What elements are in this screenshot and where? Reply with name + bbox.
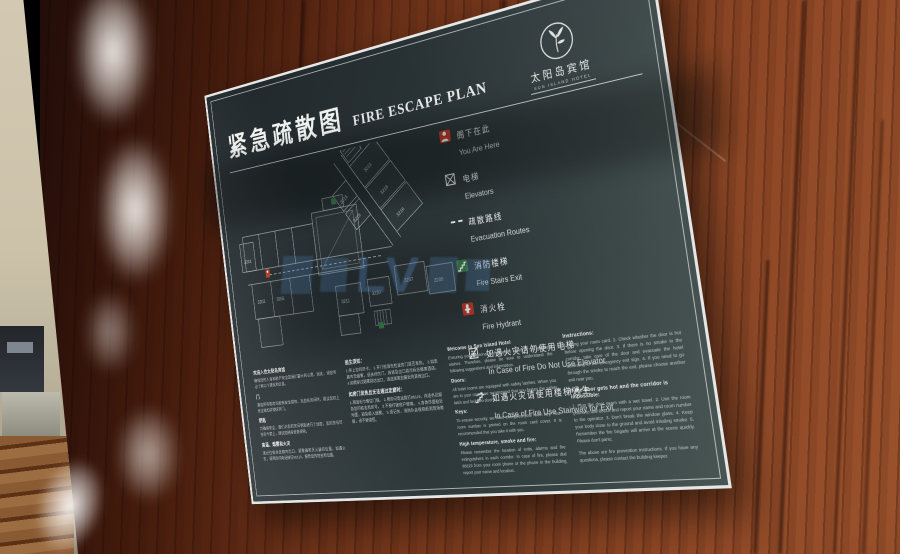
watermark-glyph (281, 256, 314, 294)
info-paragraph: Please remember the location of exits, a… (460, 443, 569, 476)
info-column-cn-welcome: 欢迎入住太阳岛宾馆 确保您的人身和财产安全是我们最大的心愿。因此，请您务必了解以… (253, 360, 351, 491)
legend-label-en: Fire Hydrant (482, 317, 522, 331)
legend-label-cn: 疏散路线 (468, 211, 503, 227)
legend-label-cn: 电梯 (462, 171, 480, 184)
background-object-slot (7, 342, 33, 353)
background-shelf (2, 392, 60, 436)
svg-text:3203: 3203 (257, 299, 265, 305)
window-reflection (118, 408, 178, 500)
legend-label-cn: 阁下在此 (456, 124, 491, 141)
info-paragraph: The above are fire prevention instructio… (578, 443, 699, 464)
fire-hydrant-icon (462, 302, 475, 316)
info-column-en-instructions: Instructions: 1. Bring your room card. 2… (562, 320, 702, 478)
info-paragraph: 1. Plug the door seam with a wet towel. … (572, 393, 697, 445)
watermark: LV (280, 246, 492, 304)
legend-label-en: You Are Here (459, 139, 501, 157)
dashed-route-icon (450, 215, 462, 224)
you-are-here-icon (439, 129, 451, 143)
window-reflection (100, 140, 170, 280)
elevator-icon (444, 172, 457, 191)
you-are-here-marker (265, 269, 270, 278)
info-column-en-welcome: Welcome to Sun Island Hotel Ensuring you… (447, 335, 570, 482)
info-column-cn-instructions: 逃生须知： 1.带上您的房卡。 2.开门前请先检查房门是否发热。 3.如走廊内无… (344, 349, 453, 487)
legend-label-en: Evacuation Routes (470, 224, 530, 244)
photo-scene: 紧急疏散图FIRE ESCAPE PLAN 太阳岛宾馆 SUN ISLAND (0, 0, 900, 554)
window-reflection (86, 292, 134, 372)
legend-label-en: Elevators (464, 185, 494, 200)
lotus-logo-icon (536, 15, 578, 65)
background-object-box (0, 326, 44, 392)
watermark-text: LV (354, 246, 422, 304)
watermark-glyph (428, 257, 459, 293)
watermark-glyph (320, 258, 348, 292)
window-reflection (76, 0, 150, 122)
watermark-glyph (465, 259, 491, 291)
